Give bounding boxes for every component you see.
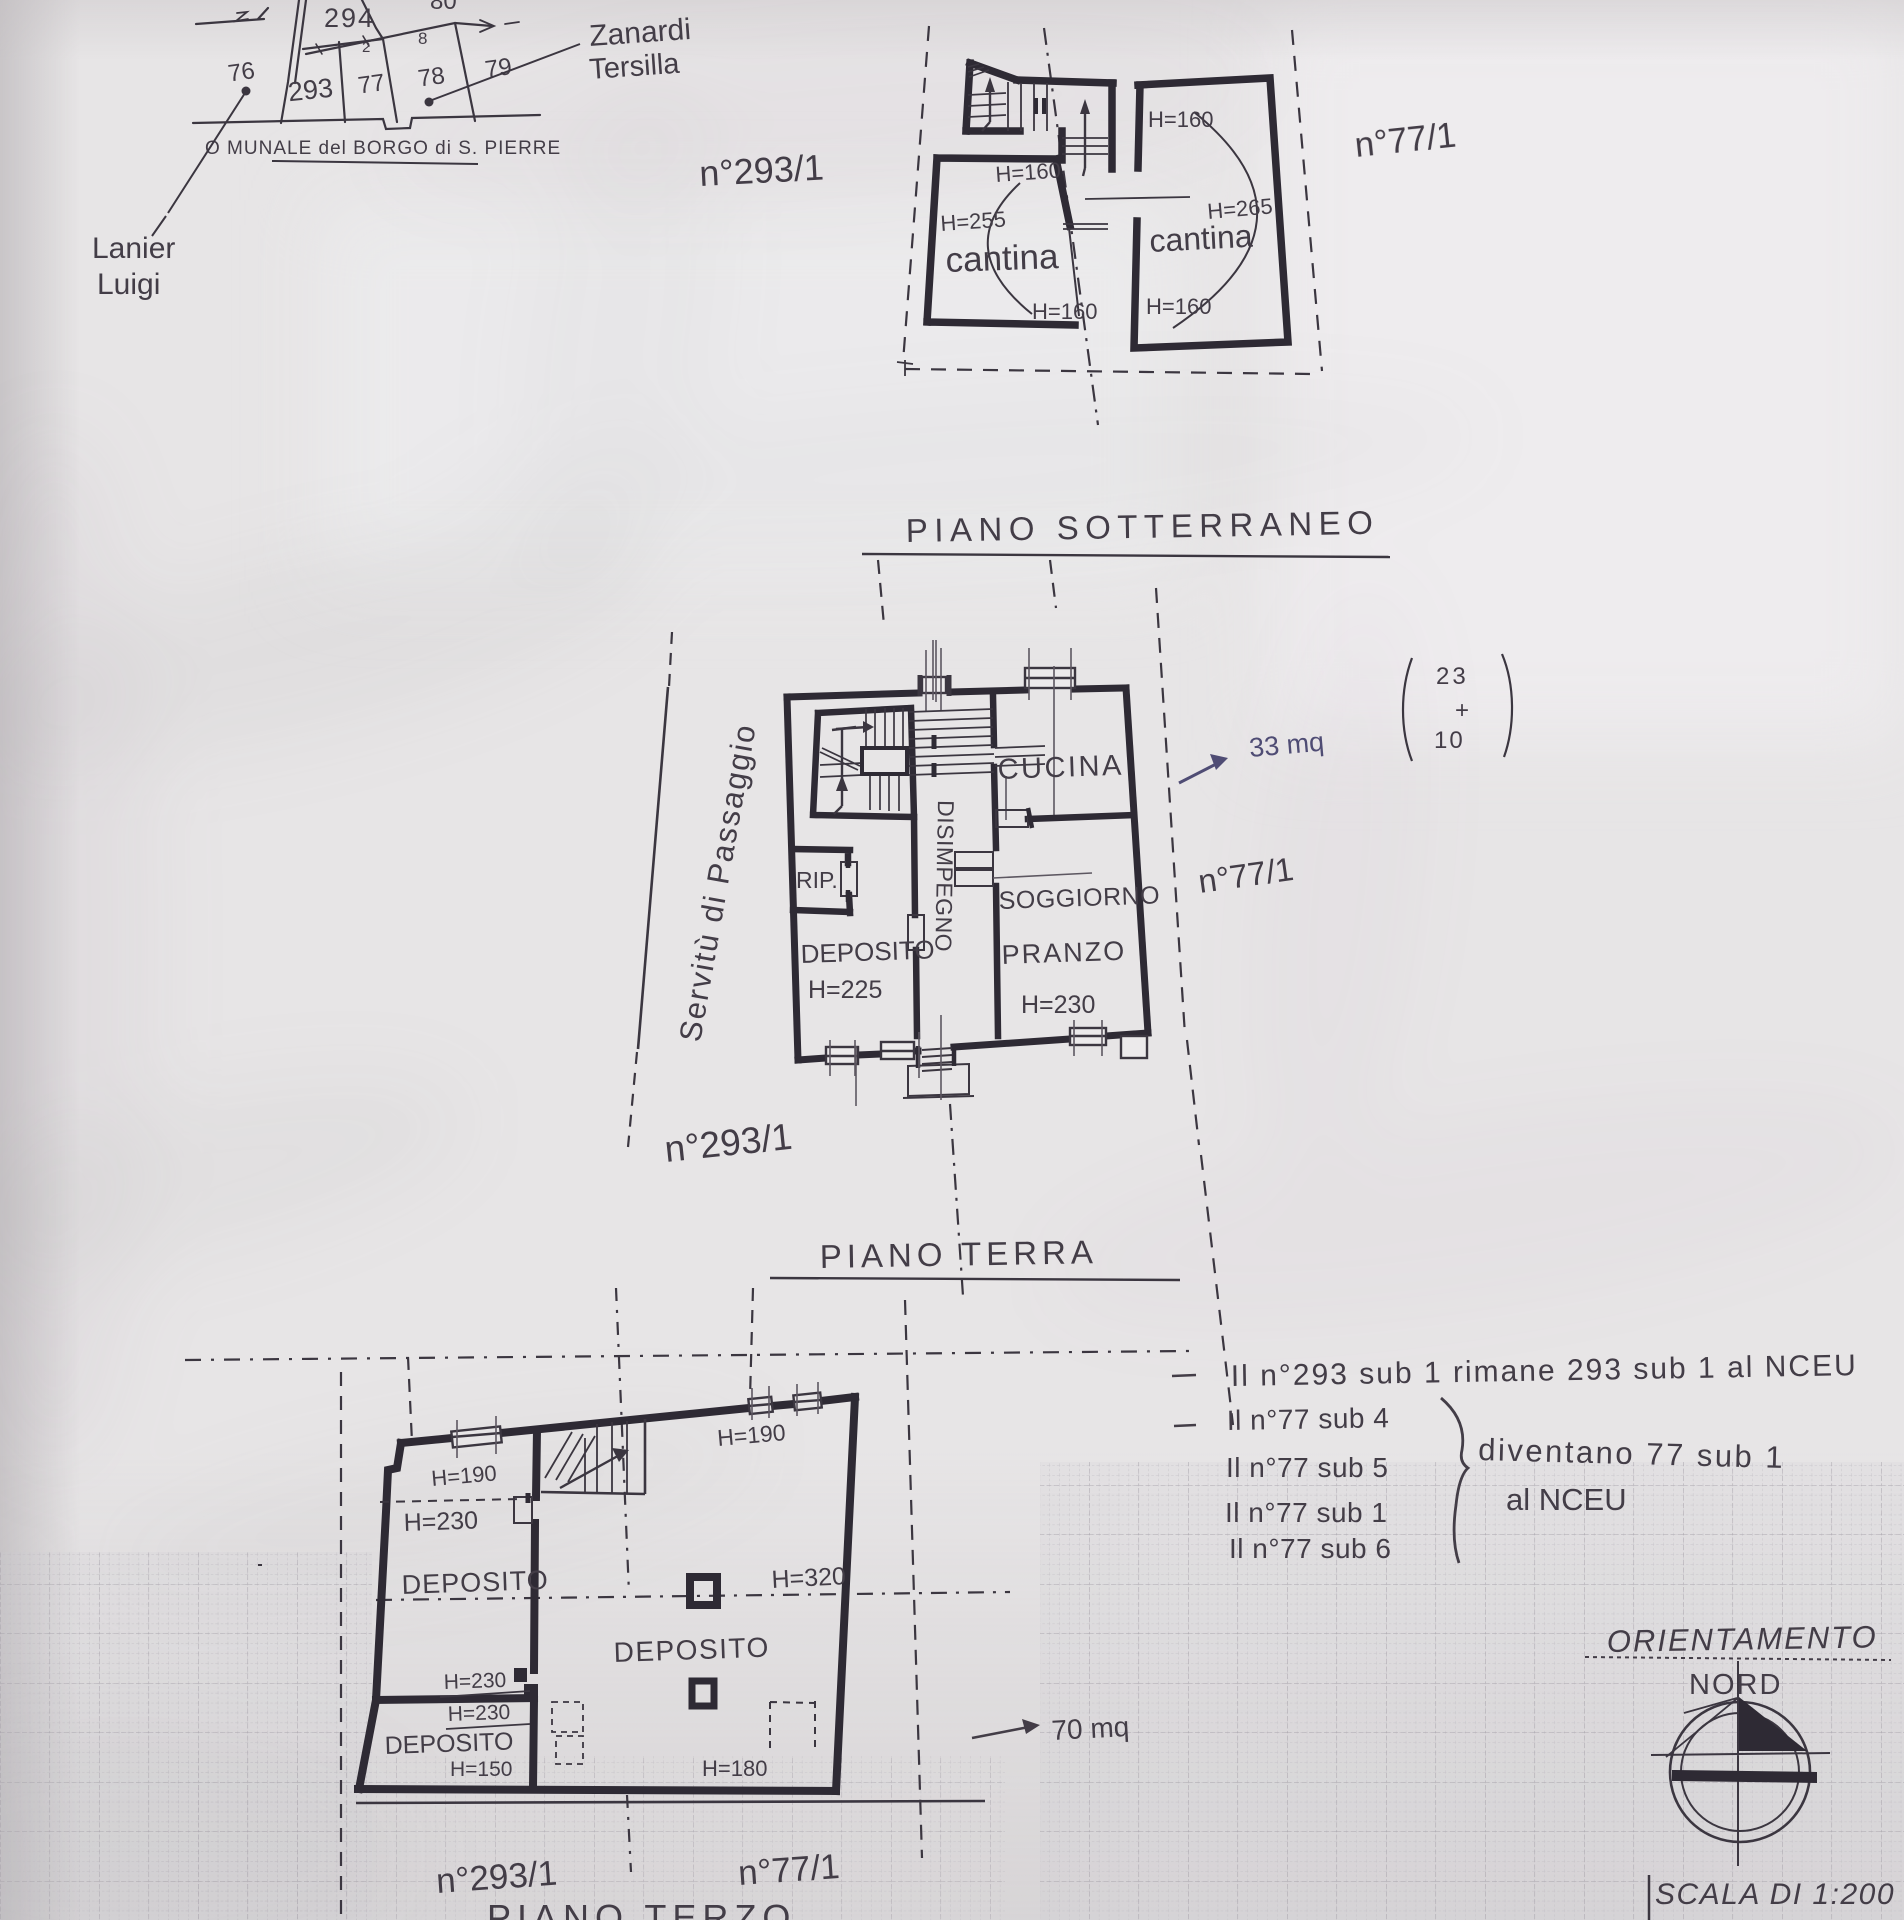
svg-text:Il n°77 sub 4: Il n°77 sub 4 <box>1227 1402 1390 1436</box>
svg-text:H=230: H=230 <box>447 1701 510 1726</box>
svg-text:H=160: H=160 <box>1148 107 1213 132</box>
svg-text:PIANO TERZO: PIANO TERZO <box>487 1897 796 1920</box>
svg-text:al NCEU: al NCEU <box>1506 1482 1627 1517</box>
svg-text:SCALA DI 1:200: SCALA DI 1:200 <box>1655 1878 1895 1911</box>
svg-text:70 mq: 70 mq <box>1051 1711 1130 1746</box>
svg-text:n°77/1: n°77/1 <box>737 1847 841 1893</box>
svg-text:H=320: H=320 <box>771 1562 847 1594</box>
svg-text:294: 294 <box>324 3 375 33</box>
svg-text:Tersilla: Tersilla <box>588 48 681 86</box>
svg-text:H=180: H=180 <box>702 1756 767 1781</box>
svg-text:H=230: H=230 <box>1021 991 1095 1019</box>
svg-text:80: 80 <box>430 0 457 15</box>
svg-text:H=150: H=150 <box>450 1758 512 1781</box>
svg-text:8: 8 <box>418 29 427 48</box>
svg-text:NORD: NORD <box>1689 1669 1782 1701</box>
svg-text:H=160: H=160 <box>995 157 1062 187</box>
svg-text:+: + <box>1455 697 1469 724</box>
svg-text:78: 78 <box>416 62 446 92</box>
svg-text:RIP.: RIP. <box>796 867 838 893</box>
svg-text:SOGGIORNO: SOGGIORNO <box>998 881 1160 915</box>
svg-text:2: 2 <box>362 39 370 56</box>
svg-text:H=160: H=160 <box>1032 299 1097 324</box>
svg-text:H=225: H=225 <box>808 976 882 1004</box>
svg-text:10: 10 <box>1434 727 1465 754</box>
svg-text:76: 76 <box>226 57 256 87</box>
svg-text:O MUNALE del BORGO di S. PIERR: O MUNALE del BORGO di S. PIERRE <box>205 138 561 159</box>
svg-text:H=230: H=230 <box>403 1506 478 1537</box>
svg-text:H=160: H=160 <box>1146 294 1211 319</box>
svg-text:H=255: H=255 <box>940 206 1007 236</box>
svg-text:Il n°77 sub 1: Il n°77 sub 1 <box>1225 1497 1387 1528</box>
svg-text:n°293/1: n°293/1 <box>698 147 824 194</box>
svg-text:77: 77 <box>356 69 386 99</box>
svg-text:23: 23 <box>1436 663 1469 690</box>
svg-text:Il n°77 sub 6: Il n°77 sub 6 <box>1229 1533 1391 1564</box>
svg-text:DEPOSITO: DEPOSITO <box>800 934 935 969</box>
svg-text:PIANO TERRA: PIANO TERRA <box>819 1233 1098 1275</box>
svg-text:PRANZO: PRANZO <box>1001 936 1126 970</box>
svg-text:cantina: cantina <box>1148 218 1253 259</box>
svg-text:Il n°77 sub 5: Il n°77 sub 5 <box>1226 1452 1388 1483</box>
svg-text:ORIENTAMENTO: ORIENTAMENTO <box>1607 1619 1878 1659</box>
svg-text:DEPOSITO: DEPOSITO <box>384 1728 514 1760</box>
svg-text:Luigi: Luigi <box>97 268 160 301</box>
svg-text:cantina: cantina <box>945 237 1060 280</box>
svg-text:H=230: H=230 <box>443 1669 506 1694</box>
svg-text:CUCINA: CUCINA <box>997 750 1124 786</box>
svg-text:DEPOSITO: DEPOSITO <box>613 1632 770 1668</box>
svg-text:Lanier: Lanier <box>92 232 175 265</box>
svg-text:DEPOSITO: DEPOSITO <box>401 1565 549 1600</box>
svg-text:DISIMPEGNO: DISIMPEGNO <box>930 800 959 952</box>
svg-text:293: 293 <box>287 73 335 108</box>
